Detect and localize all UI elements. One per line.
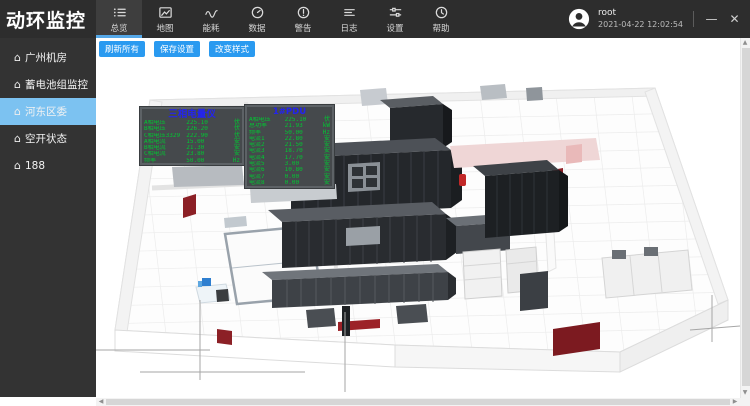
fire-extinguisher [459, 174, 466, 186]
sidebar-item-hedong-district[interactable]: ▸ ⌂ 河东区委 [0, 98, 96, 125]
meter-label: 电流8 [249, 180, 285, 186]
help-clock-icon [434, 5, 449, 20]
overview-list-icon [112, 5, 127, 20]
pdu-panel[interactable]: 1#PDU A相电压 225.10 伏 总功率 21.93 kW 频率 50.0… [245, 105, 334, 188]
tab-energy[interactable]: 能耗 [188, 0, 234, 38]
tab-help[interactable]: 帮助 [418, 0, 464, 38]
nav-tab-label: 警告 [294, 22, 311, 34]
minimize-button[interactable]: — [704, 0, 719, 38]
tab-map[interactable]: 地图 [142, 0, 188, 38]
tab-data[interactable]: 数据 [234, 0, 280, 38]
panel-rows: A相电压 225.10 伏 B相电压 226.20 伏 C相电压3329 222… [144, 120, 240, 164]
vertical-scrollbar[interactable]: ▲ ▼ [740, 38, 750, 398]
data-gauge-icon [250, 5, 265, 20]
home-icon: ⌂ [14, 51, 21, 64]
alarm-icon [296, 5, 311, 20]
meter-unit: Hz [219, 158, 240, 164]
power-meter-panel[interactable]: 三相电量仪 A相电压 225.10 伏 B相电压 226.20 伏 C相电压33… [140, 107, 244, 165]
meter-unit: 安 [312, 180, 330, 186]
tab-log[interactable]: 日志 [326, 0, 372, 38]
panel-rows: A相电压 225.10 伏 总功率 21.93 kW 频率 50.00 Hz [249, 117, 330, 186]
sidebar-item-label: 广州机房 [25, 50, 67, 65]
app-window: { "app": { "title": "动环监控" }, "topnav": … [0, 0, 750, 406]
close-button[interactable]: ✕ [727, 0, 742, 38]
nav-tab-label: 地图 [156, 22, 173, 34]
sidebar-item-label: 空开状态 [25, 131, 67, 146]
map-image-icon [158, 5, 173, 20]
user-avatar-icon[interactable] [568, 8, 590, 30]
sidebar-item-battery-group-monitor[interactable]: ▸ ⌂ 蓄电池组监控 [0, 71, 96, 98]
meter-value: 0.00 [285, 180, 313, 186]
main-content: 刷新所有 保存设置 改变样式 三相电量仪 A相电压 225.10 伏 B相电压 … [96, 38, 750, 406]
datacenter-3d-view[interactable] [96, 38, 740, 398]
home-icon: ⌂ [14, 132, 21, 145]
sidebar-item-188[interactable]: ▸ ⌂ 188 [0, 152, 96, 179]
sidebar-item-breaker-status[interactable]: ▸ ⌂ 空开状态 [0, 125, 96, 152]
vertical-scroll-thumb[interactable] [742, 48, 750, 386]
desk-monitor [202, 278, 211, 286]
log-icon [342, 5, 357, 20]
window-controls-divider [693, 11, 694, 27]
main-navigation: 总览 地图 能耗 数据 警告 日志 [96, 0, 464, 38]
nav-tab-label: 日志 [340, 22, 357, 34]
meter-label: 频率 [144, 158, 186, 164]
sidebar-item-label: 蓄电池组监控 [25, 77, 88, 92]
horizontal-scrollbar[interactable]: ◀ ▶ [96, 398, 750, 406]
settings-sliders-icon [388, 5, 403, 20]
datetime-label: 2021-04-22 12:02:54 [598, 20, 683, 30]
tab-alarm[interactable]: 警告 [280, 0, 326, 38]
sidebar-item-label: 188 [25, 160, 45, 172]
scroll-down-icon[interactable]: ▼ [740, 388, 750, 398]
nav-tab-label: 总览 [110, 22, 127, 34]
nav-tab-label: 帮助 [432, 22, 449, 34]
meter-row: 电流8 0.00 安 [249, 180, 330, 186]
change-style-button[interactable]: 改变样式 [209, 41, 255, 57]
door [224, 216, 247, 228]
meter-value: 50.00 [186, 158, 219, 164]
sidebar-item-guangzhou-room[interactable]: ▸ ⌂ 广州机房 [0, 44, 96, 71]
nav-tab-label: 数据 [248, 22, 265, 34]
sidebar: ▸ ⌂ 广州机房 ▸ ⌂ 蓄电池组监控 ▸ ⌂ 河东区委 ▸ ⌂ 空开状态 ▸ … [0, 38, 96, 397]
panel-title: 三相电量仪 [144, 109, 240, 120]
scene-toolbar: 刷新所有 保存设置 改变样式 [99, 41, 255, 57]
topbar-right: root 2021-04-22 12:02:54 — ✕ [568, 0, 750, 38]
nav-tab-label: 设置 [386, 22, 403, 34]
scroll-up-icon[interactable]: ▲ [740, 38, 750, 48]
meter-row: 频率 50.00 Hz [144, 158, 240, 164]
refresh-all-button[interactable]: 刷新所有 [99, 41, 145, 57]
office-chair [216, 289, 229, 302]
user-name: root [598, 8, 683, 19]
sidebar-item-label: 河东区委 [25, 104, 67, 119]
app-title: 动环监控 [0, 0, 96, 38]
tab-overview[interactable]: 总览 [96, 0, 142, 38]
tab-settings[interactable]: 设置 [372, 0, 418, 38]
horizontal-scroll-thumb[interactable] [106, 399, 730, 405]
scroll-right-icon[interactable]: ▶ [730, 398, 740, 406]
topbar: 动环监控 总览 地图 能耗 数据 警告 [0, 0, 750, 38]
energy-wave-icon [204, 5, 219, 20]
save-settings-button[interactable]: 保存设置 [154, 41, 200, 57]
panel-title: 1#PDU [249, 107, 330, 117]
home-icon: ⌂ [14, 105, 21, 118]
home-icon: ⌂ [14, 159, 21, 172]
scroll-left-icon[interactable]: ◀ [96, 398, 106, 406]
home-icon: ⌂ [14, 78, 21, 91]
nav-tab-label: 能耗 [202, 22, 219, 34]
user-info: root 2021-04-22 12:02:54 [598, 8, 683, 29]
